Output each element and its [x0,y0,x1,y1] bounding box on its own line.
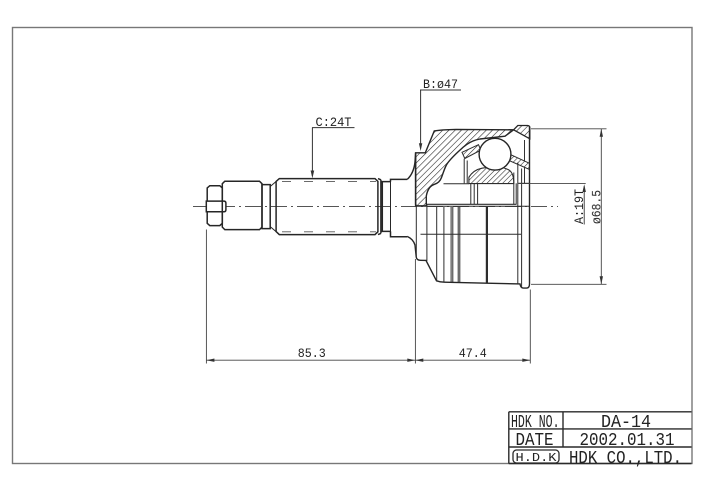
svg-text:DA-14: DA-14 [601,413,651,433]
svg-text:HDK CO.,LTD.: HDK CO.,LTD. [569,449,682,469]
svg-text:HDK NO.: HDK NO. [511,413,560,433]
svg-text:85.3: 85.3 [298,347,326,361]
svg-text:DATE: DATE [516,431,554,451]
svg-text:ø68.5: ø68.5 [590,190,604,224]
svg-text:H.D.K: H.D.K [516,451,558,465]
svg-text:A:19T: A:19T [573,189,587,224]
svg-text:47.4: 47.4 [459,347,487,361]
